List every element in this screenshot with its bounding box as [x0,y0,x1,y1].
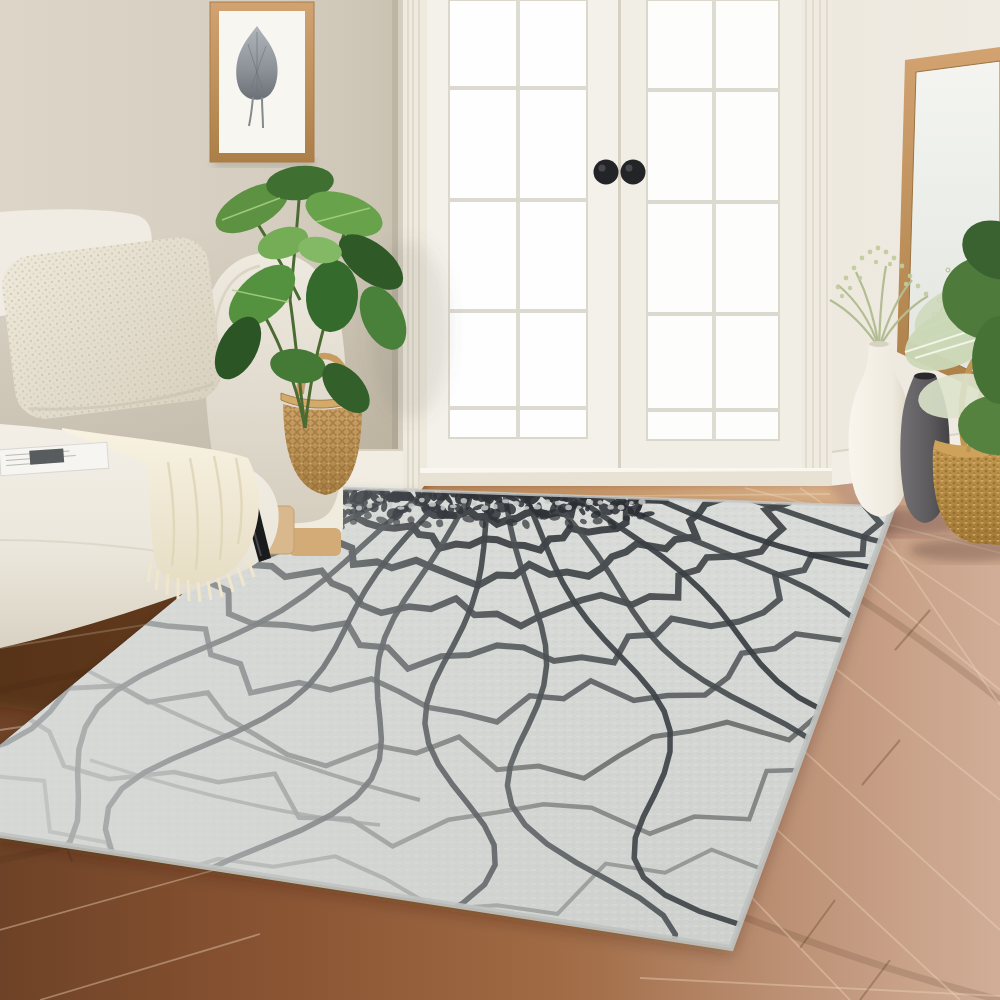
door-knob-right-highlight [626,165,633,172]
white-vase-mouth [869,341,889,347]
door-meeting-gap [618,0,621,470]
framed-leaf-art [210,2,314,167]
door-knob-left [594,160,619,185]
magazine-photo [29,448,64,464]
white-planter-wood-base [289,528,341,556]
sofa-pillow [0,234,225,422]
door-knob-left-highlight [599,165,606,172]
living-room-scene [0,0,1000,1000]
gray-vase-mouth [914,373,936,380]
door-knob-right [621,160,646,185]
scene-photo [0,0,1000,1000]
french-doors [403,0,832,491]
